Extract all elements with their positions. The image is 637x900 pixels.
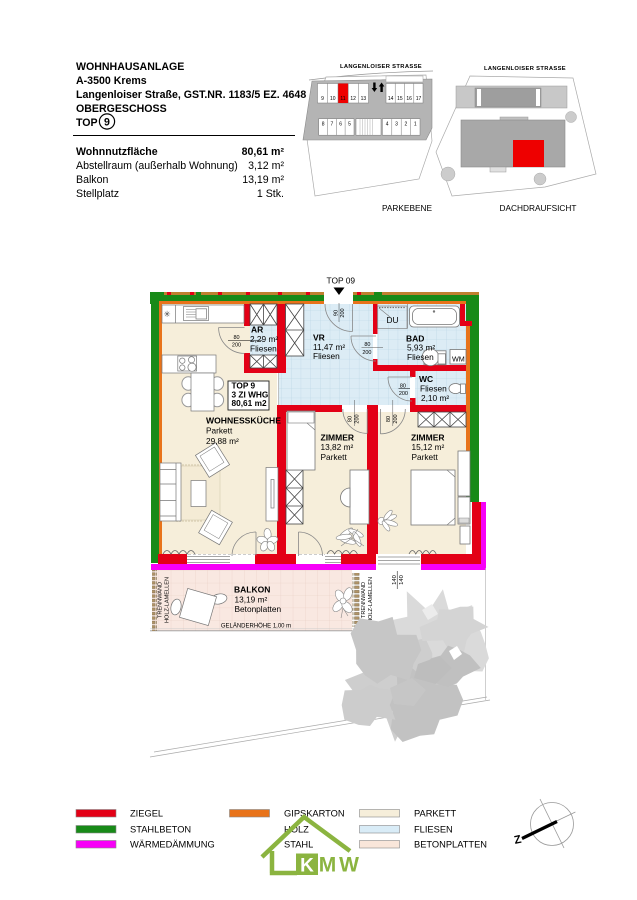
svg-text:200: 200 bbox=[393, 414, 399, 423]
svg-text:Parkett: Parkett bbox=[321, 452, 348, 462]
svg-text:29,88 m²: 29,88 m² bbox=[206, 436, 239, 446]
svg-text:Fliesen: Fliesen bbox=[250, 344, 277, 354]
svg-text:GELÄNDERHÖHE 1,00 m: GELÄNDERHÖHE 1,00 m bbox=[221, 623, 291, 630]
svg-text:Langenloiser Straße, GST.NR. 1: Langenloiser Straße, GST.NR. 1183/5 EZ. … bbox=[76, 89, 306, 101]
svg-text:STAHLBETON: STAHLBETON bbox=[130, 825, 191, 835]
svg-text:10: 10 bbox=[330, 96, 336, 102]
svg-text:6: 6 bbox=[339, 122, 342, 128]
svg-text:90: 90 bbox=[334, 310, 340, 316]
svg-text:Parkett: Parkett bbox=[206, 426, 233, 436]
svg-text:BETONPLATTEN: BETONPLATTEN bbox=[414, 840, 487, 850]
svg-text:AR: AR bbox=[251, 325, 263, 335]
svg-text:TRENNWAND: TRENNWAND bbox=[158, 582, 164, 618]
svg-text:1 Stk.: 1 Stk. bbox=[257, 188, 284, 200]
svg-text:200: 200 bbox=[399, 391, 408, 397]
svg-text:200: 200 bbox=[362, 350, 371, 356]
svg-text:WOHNESSKÜCHE: WOHNESSKÜCHE bbox=[206, 416, 281, 426]
svg-text:13,19 m²: 13,19 m² bbox=[235, 595, 268, 605]
svg-text:WM: WM bbox=[452, 355, 465, 364]
svg-text:TOP 09: TOP 09 bbox=[327, 276, 356, 286]
svg-text:Abstellraum (außerhalb Wohnung: Abstellraum (außerhalb Wohnung) bbox=[76, 160, 238, 172]
svg-text:2,29 m²: 2,29 m² bbox=[250, 334, 278, 344]
svg-text:8: 8 bbox=[322, 122, 325, 128]
svg-text:GIPSKARTON: GIPSKARTON bbox=[284, 809, 345, 819]
svg-text:2: 2 bbox=[405, 122, 408, 128]
svg-text:Wohnnutzfläche: Wohnnutzfläche bbox=[76, 146, 158, 158]
svg-text:DU: DU bbox=[387, 315, 399, 325]
svg-text:14: 14 bbox=[388, 96, 394, 102]
svg-text:13: 13 bbox=[361, 96, 367, 102]
svg-text:WOHNHAUSANLAGE: WOHNHAUSANLAGE bbox=[76, 61, 184, 73]
svg-text:K: K bbox=[300, 856, 314, 877]
svg-text:13,82 m²: 13,82 m² bbox=[321, 442, 354, 452]
svg-text:4: 4 bbox=[386, 122, 389, 128]
svg-text:W: W bbox=[339, 854, 359, 877]
svg-text:HOLZ-LAMELLEN: HOLZ-LAMELLEN bbox=[368, 577, 374, 623]
svg-text:ZIEGEL: ZIEGEL bbox=[130, 809, 163, 819]
svg-text:OBERGESCHOSS: OBERGESCHOSS bbox=[76, 103, 167, 115]
svg-text:3,12 m²: 3,12 m² bbox=[248, 160, 284, 172]
svg-text:12: 12 bbox=[350, 96, 356, 102]
svg-text:ZIMMER: ZIMMER bbox=[321, 433, 355, 443]
svg-text:80,61 m²: 80,61 m² bbox=[242, 146, 285, 158]
svg-text:WC: WC bbox=[419, 374, 433, 384]
svg-text:16: 16 bbox=[406, 96, 412, 102]
svg-text:Balkon: Balkon bbox=[76, 174, 108, 186]
svg-text:ZIMMER: ZIMMER bbox=[411, 433, 445, 443]
svg-text:15,12 m²: 15,12 m² bbox=[412, 442, 445, 452]
svg-text:WÄRMEDÄMMUNG: WÄRMEDÄMMUNG bbox=[130, 840, 215, 850]
svg-text:HOLZ-LAMELLEN: HOLZ-LAMELLEN bbox=[165, 577, 171, 623]
svg-text:5: 5 bbox=[348, 122, 351, 128]
svg-text:A-3500 Krems: A-3500 Krems bbox=[76, 75, 147, 87]
svg-text:Parkett: Parkett bbox=[412, 452, 439, 462]
svg-text:80: 80 bbox=[386, 416, 392, 422]
svg-text:80: 80 bbox=[348, 416, 354, 422]
svg-text:BALKON: BALKON bbox=[234, 585, 270, 595]
svg-text:11: 11 bbox=[340, 96, 345, 102]
svg-text:Fliesen: Fliesen bbox=[407, 352, 434, 362]
svg-text:1: 1 bbox=[414, 122, 417, 128]
svg-text:17: 17 bbox=[416, 96, 422, 102]
svg-text:DACHDRAUFSICHT: DACHDRAUFSICHT bbox=[500, 203, 577, 213]
svg-text:9: 9 bbox=[104, 117, 110, 129]
svg-text:80: 80 bbox=[364, 342, 370, 348]
svg-text:M: M bbox=[319, 854, 337, 877]
svg-text:13,19 m²: 13,19 m² bbox=[242, 174, 284, 186]
svg-text:2,10 m²: 2,10 m² bbox=[421, 393, 449, 403]
svg-text:PARKETT: PARKETT bbox=[414, 809, 457, 819]
svg-text:Betonplatten: Betonplatten bbox=[235, 604, 282, 614]
svg-text:15: 15 bbox=[397, 96, 403, 102]
svg-text:9: 9 bbox=[321, 96, 324, 102]
svg-text:STAHL: STAHL bbox=[284, 840, 313, 850]
svg-text:140: 140 bbox=[399, 575, 405, 585]
svg-text:3: 3 bbox=[395, 122, 398, 128]
svg-text:200: 200 bbox=[355, 414, 361, 423]
svg-text:Fliesen: Fliesen bbox=[313, 351, 340, 361]
svg-text:TRENNWAND: TRENNWAND bbox=[361, 582, 367, 618]
svg-text:Stellplatz: Stellplatz bbox=[76, 188, 119, 200]
svg-text:LANGENLOISER STRASSE: LANGENLOISER STRASSE bbox=[484, 66, 566, 72]
svg-text:80,61 m2: 80,61 m2 bbox=[232, 398, 267, 408]
svg-text:7: 7 bbox=[331, 122, 334, 128]
svg-text:200: 200 bbox=[232, 343, 241, 349]
svg-text:FLIESEN: FLIESEN bbox=[414, 825, 453, 835]
svg-text:TOP: TOP bbox=[76, 117, 98, 129]
svg-text:200: 200 bbox=[340, 308, 346, 317]
svg-text:LANGENLOISER STRASSE: LANGENLOISER STRASSE bbox=[340, 64, 422, 70]
svg-text:PARKEBENE: PARKEBENE bbox=[382, 203, 433, 213]
svg-text:✳: ✳ bbox=[163, 309, 171, 319]
